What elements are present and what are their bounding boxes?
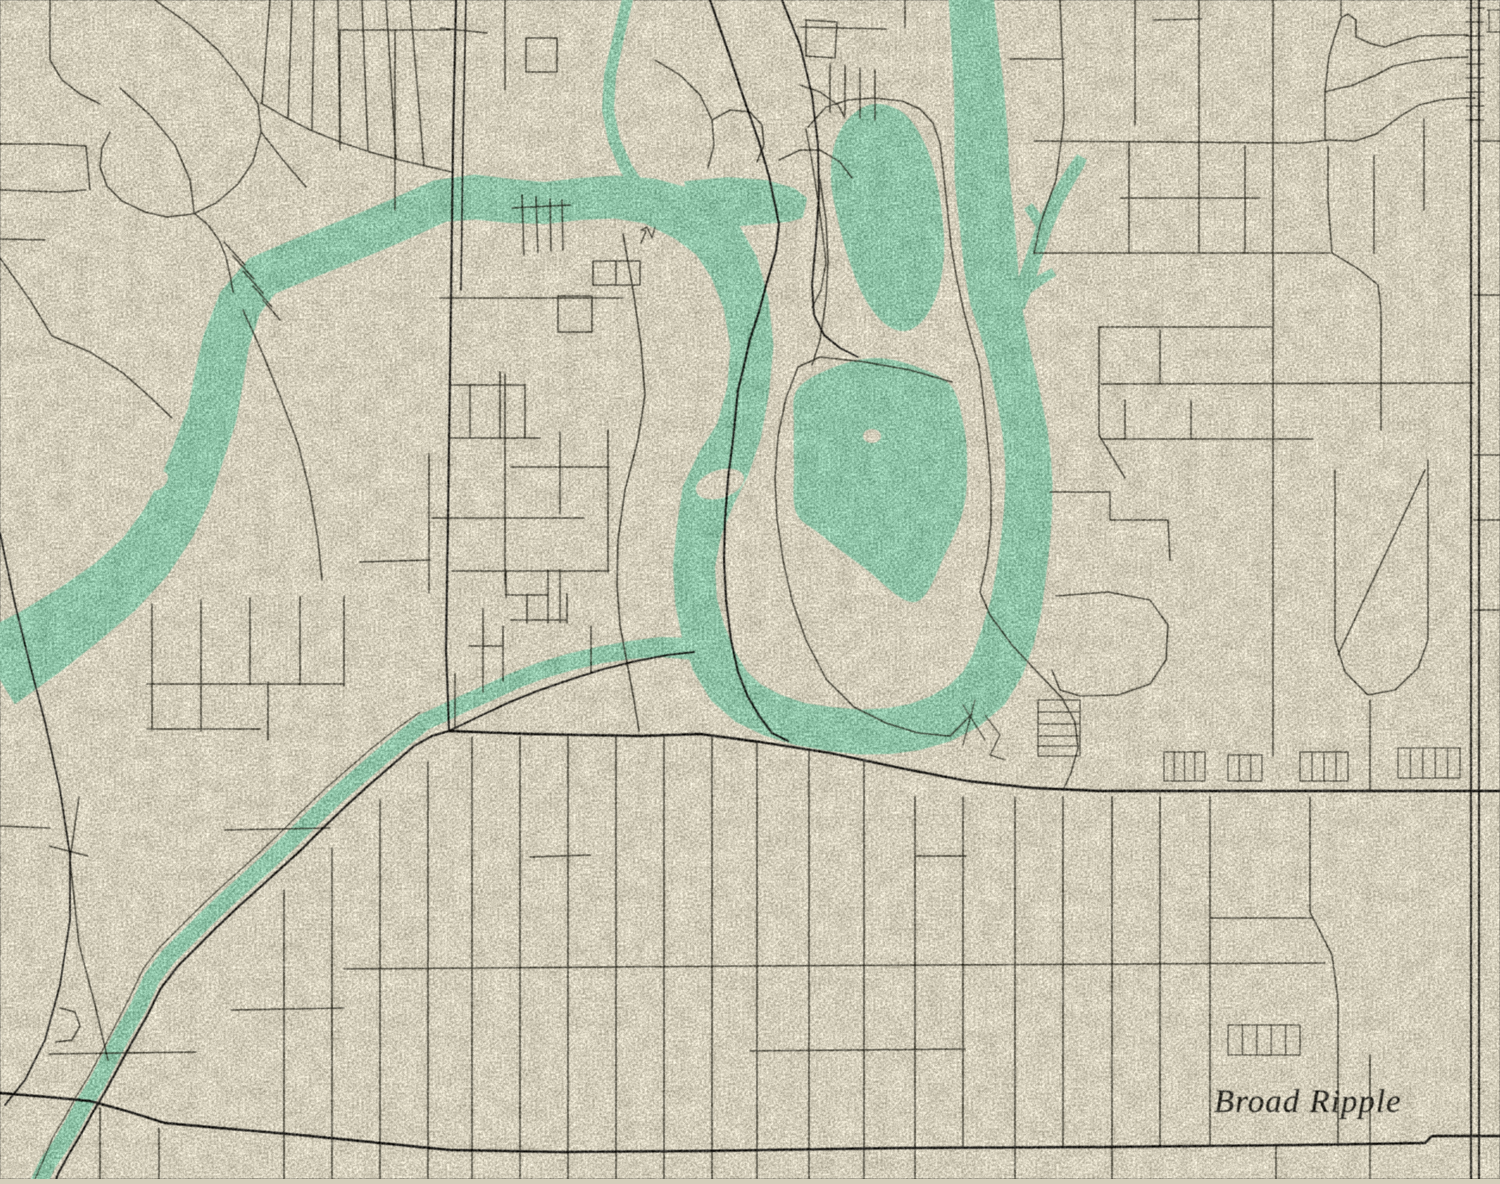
svg-text:Broad Ripple: Broad Ripple bbox=[1214, 1084, 1402, 1120]
